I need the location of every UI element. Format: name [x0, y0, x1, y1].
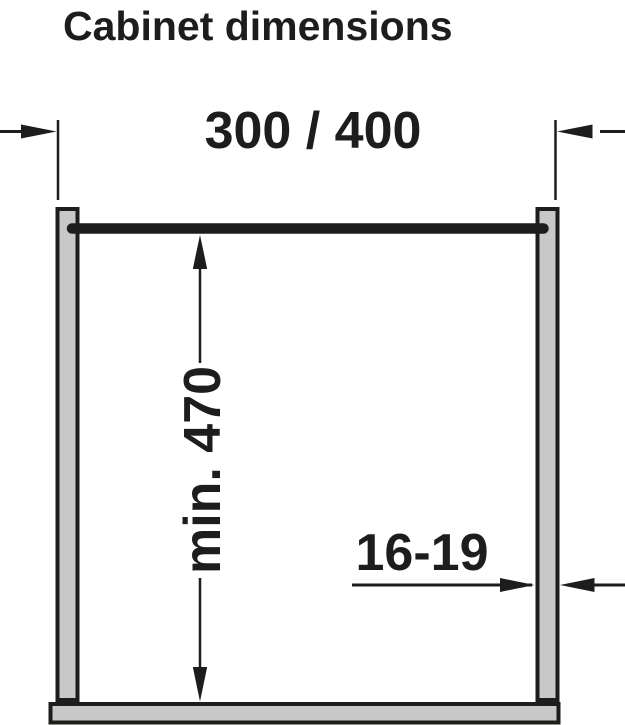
thickness-arrow-left-icon — [560, 578, 595, 592]
width-arrow-right-icon — [557, 125, 593, 139]
cabinet-bottom-plinth — [51, 704, 559, 723]
cabinet-left-panel — [58, 209, 78, 700]
cabinet-right-panel — [538, 209, 558, 700]
cabinet-dimensions-diagram: Cabinet dimensions 300 / 400 min. 470 16… — [0, 0, 625, 725]
panel-thickness-label: 16-19 — [356, 524, 489, 582]
thickness-arrow-right-icon — [500, 578, 535, 592]
height-dimension-label: min. 470 — [174, 366, 232, 574]
height-arrow-up-icon — [193, 235, 207, 269]
width-arrow-left-icon — [21, 125, 57, 139]
diagram-title: Cabinet dimensions — [63, 3, 453, 49]
width-dimension-label: 300 / 400 — [205, 102, 422, 160]
height-arrow-down-icon — [193, 667, 207, 702]
